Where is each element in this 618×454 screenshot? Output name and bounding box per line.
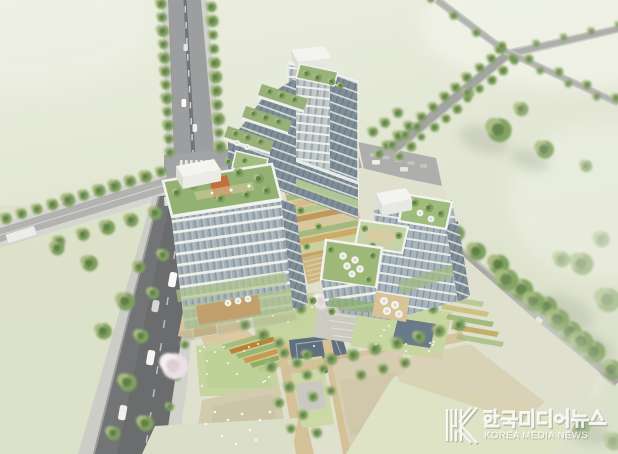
svg-text:KOREA MEDIA NEWS: KOREA MEDIA NEWS [484, 430, 588, 441]
